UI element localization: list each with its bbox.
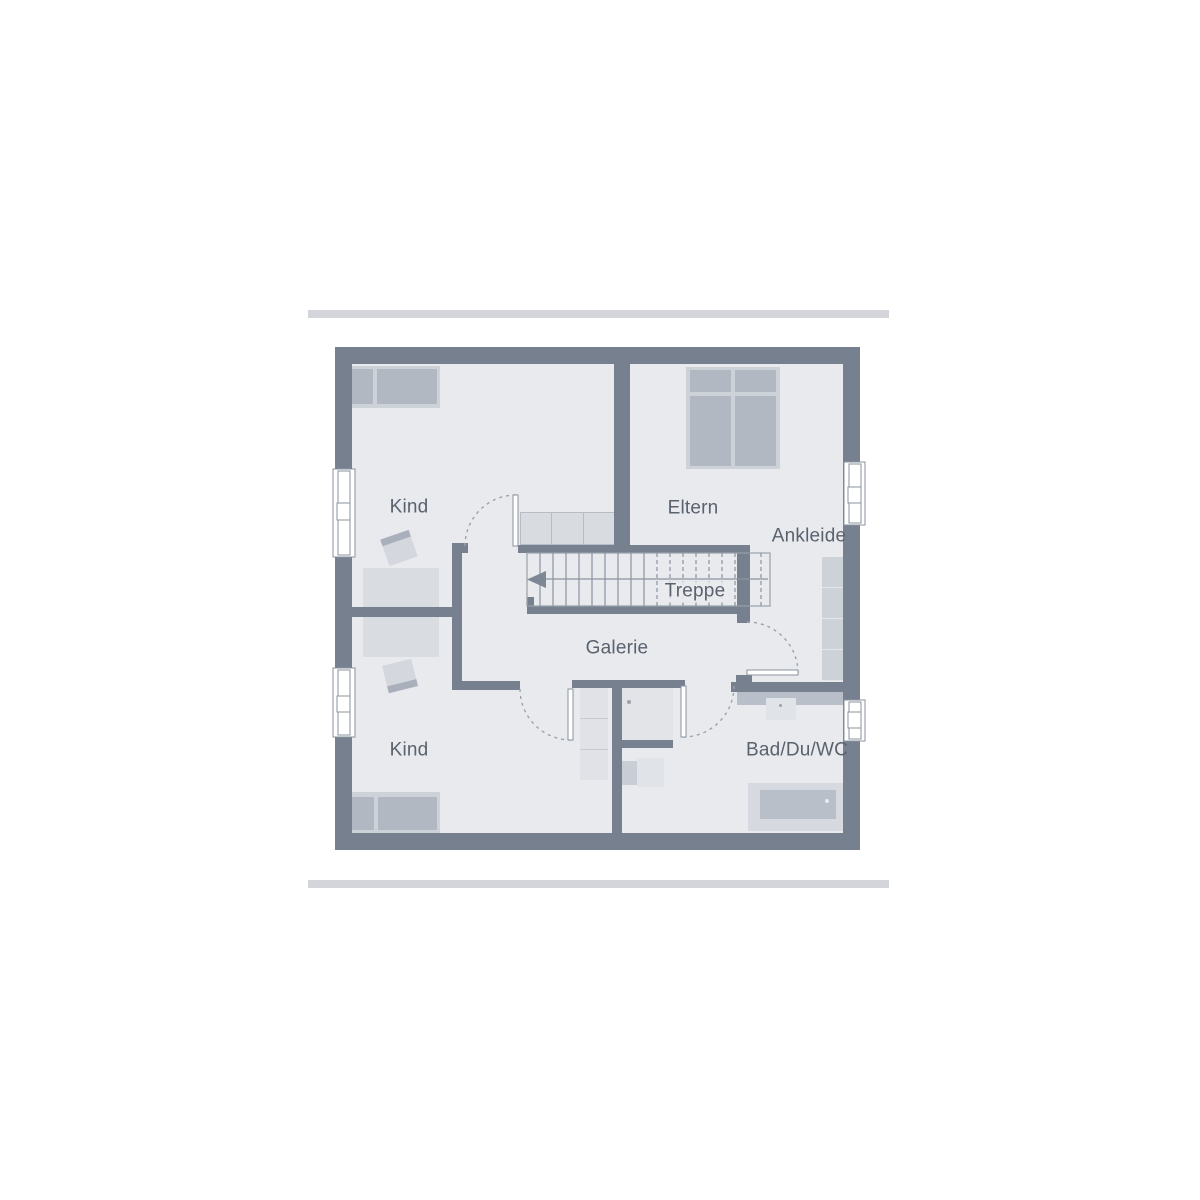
window-right-bottom	[844, 700, 865, 741]
room-label-galerie: Galerie	[586, 639, 649, 660]
door-leaf-kind-top	[513, 495, 518, 546]
door-arc-ankleide	[747, 622, 798, 673]
room-label-bad: Bad/Du/WC	[746, 741, 848, 762]
door-arc-kind-top	[465, 495, 516, 546]
room-label-kind-top: Kind	[390, 498, 429, 519]
window-left-top	[333, 469, 355, 557]
door-arc-bad	[683, 686, 734, 737]
window-left-bottom	[333, 668, 355, 737]
door-arc-kind-bottom	[520, 689, 571, 740]
door-leaf-ankleide	[747, 670, 798, 675]
floorplan-canvas: Kind Eltern Ankleide Treppe Galerie Kind…	[0, 0, 1200, 1200]
room-label-treppe: Treppe	[662, 582, 729, 603]
door-leaves	[513, 495, 798, 740]
linework-overlay	[0, 0, 1200, 1200]
staircase	[527, 553, 770, 606]
room-label-ankleide: Ankleide	[772, 527, 846, 548]
room-label-kind-bottom: Kind	[390, 741, 429, 762]
room-label-eltern: Eltern	[668, 499, 719, 520]
stair-arrow-left-icon	[527, 571, 546, 588]
door-leaf-bad	[681, 686, 686, 737]
window-right-top	[844, 462, 865, 525]
door-leaf-kind-bottom	[568, 689, 573, 740]
